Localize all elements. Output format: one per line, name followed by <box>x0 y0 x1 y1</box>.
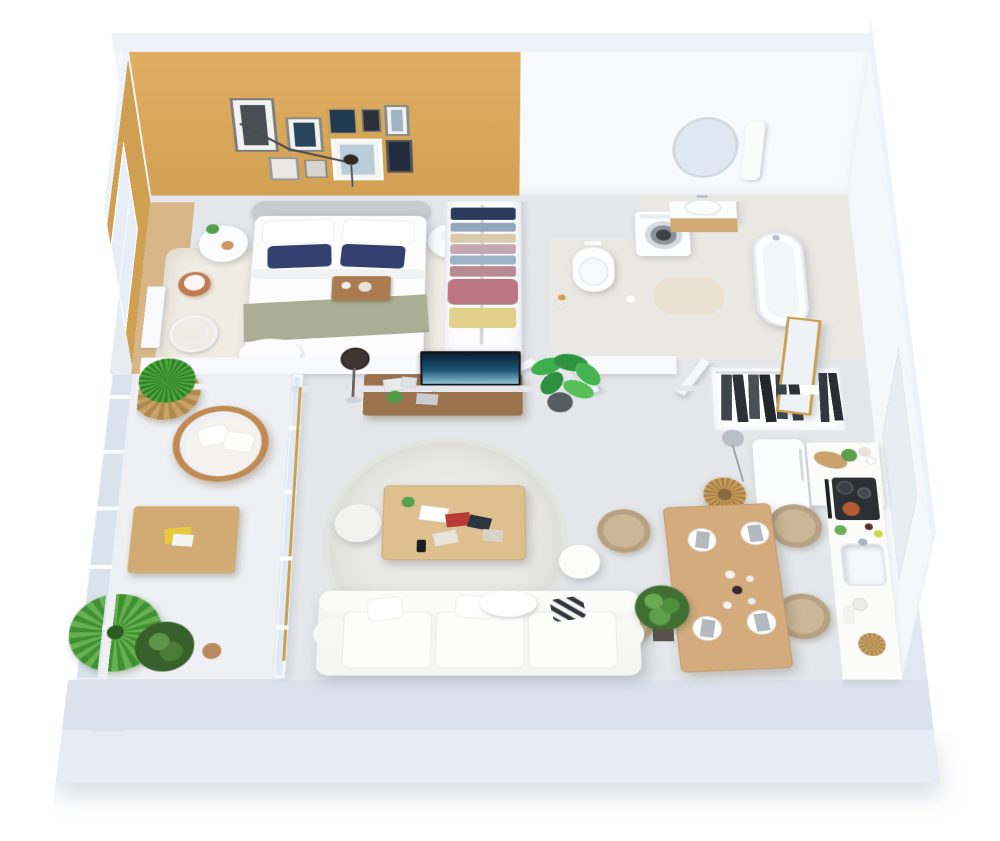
toilet-flush-plate <box>583 241 602 246</box>
candle-1 <box>725 570 736 579</box>
napkin-nw <box>695 531 710 549</box>
bottom-wall-top <box>62 680 934 731</box>
glass-post-3 <box>280 556 293 560</box>
frame-whale-navy <box>326 108 358 135</box>
sofa-cushion-2 <box>435 611 524 668</box>
hanging-garment-rose <box>450 266 516 277</box>
sofa-pillow-1 <box>366 596 404 623</box>
pouf-white <box>559 545 601 579</box>
frame-small <box>304 160 328 178</box>
frame-navy-portrait <box>386 140 414 173</box>
pot-2 <box>857 487 872 498</box>
bed-pillow-right <box>341 219 416 244</box>
apartment-3d-render-scene <box>0 0 1000 841</box>
sink-faucet <box>858 538 868 546</box>
north-wall-decor <box>111 33 873 195</box>
dish-bowl <box>852 598 869 611</box>
vanity-wood-front <box>670 218 738 232</box>
frame-dark-small <box>361 109 381 132</box>
bottom-wall-face <box>56 730 941 783</box>
hanging-coat-3 <box>748 374 760 419</box>
bed-cushion-navy-right <box>340 244 406 269</box>
bedroom-window <box>110 141 138 335</box>
hanging-garment-mauve <box>450 244 516 254</box>
toilet-brush <box>558 295 566 301</box>
washer-door-glass <box>656 229 672 240</box>
wine-glass-2 <box>747 598 756 605</box>
bed-cushion-navy-left <box>267 244 331 269</box>
kitchen-sink <box>840 543 888 585</box>
napkin-sw <box>700 619 716 638</box>
console-books <box>416 393 439 405</box>
wine-glass-1 <box>746 575 755 582</box>
console-frame-2 <box>400 376 417 388</box>
bush-pot <box>653 629 675 641</box>
window-mullion <box>119 190 131 290</box>
dining-chair-nw <box>597 509 652 552</box>
vanity-taps <box>697 195 708 198</box>
smartphone <box>417 540 427 553</box>
bed-pillow-left <box>262 219 335 244</box>
hanging-sweater-pink <box>447 279 518 305</box>
monstera-pot <box>547 392 573 412</box>
frame-sketch <box>268 157 300 180</box>
pot-1 <box>836 481 855 495</box>
wine-bottle-table <box>732 586 743 595</box>
glass-post-4 <box>276 625 289 629</box>
kettle-terracotta <box>842 502 861 516</box>
counter-jar-2 <box>865 457 876 465</box>
wine-bottle-kitchen <box>864 523 873 530</box>
counter-plant <box>841 449 858 462</box>
counter-jar-1 <box>858 447 871 457</box>
white-magazine <box>172 534 194 547</box>
north-exterior-wall <box>111 33 873 195</box>
tub-faucet <box>772 235 780 241</box>
balustrade-post-1 <box>109 395 131 399</box>
bathroom-mirror-oval <box>670 117 741 178</box>
candle-2 <box>722 601 732 609</box>
toilet-paper-roll <box>625 295 637 304</box>
sofa-cushion-3 <box>528 611 618 668</box>
balustrade-post-4 <box>89 565 112 569</box>
apartment-floor-plan <box>45 181 956 783</box>
sofa-pillow-checker <box>549 595 587 622</box>
bath-mat <box>653 277 726 315</box>
magazine-gray <box>482 529 504 542</box>
frame-seascape <box>285 117 324 152</box>
hanging-coat-1 <box>721 374 732 421</box>
hanging-garment-steel <box>451 223 516 232</box>
balustrade-post-2 <box>103 450 125 454</box>
vanity-sink <box>684 199 722 215</box>
toilet-seat <box>578 258 609 286</box>
hanging-garment-navy <box>451 208 516 220</box>
hanging-garment-blue <box>450 255 516 264</box>
hanging-skirt-plaid <box>449 308 516 329</box>
balustrade-post-3 <box>96 506 119 510</box>
oil-bottle <box>873 530 883 538</box>
frame-photo <box>384 105 410 136</box>
bath-towel-hanging <box>741 121 766 180</box>
frame-portrait-large <box>229 98 278 152</box>
sofa-throw <box>480 591 537 617</box>
herb-pot <box>834 525 847 535</box>
television-screen <box>420 351 520 385</box>
pendant-bulb <box>717 489 732 500</box>
hanging-garment-cream <box>450 234 516 243</box>
